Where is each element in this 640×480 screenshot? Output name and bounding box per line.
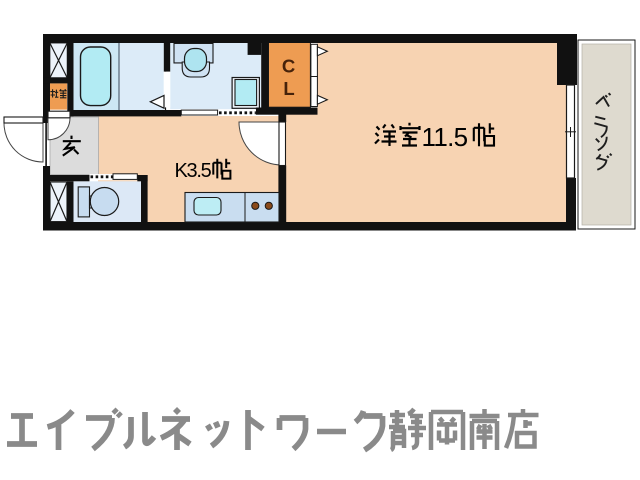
svg-text:L: L	[283, 78, 294, 99]
svg-text:11.5: 11.5	[422, 122, 468, 152]
svg-text:K3.5: K3.5	[175, 160, 212, 182]
svg-text:C: C	[282, 56, 295, 77]
